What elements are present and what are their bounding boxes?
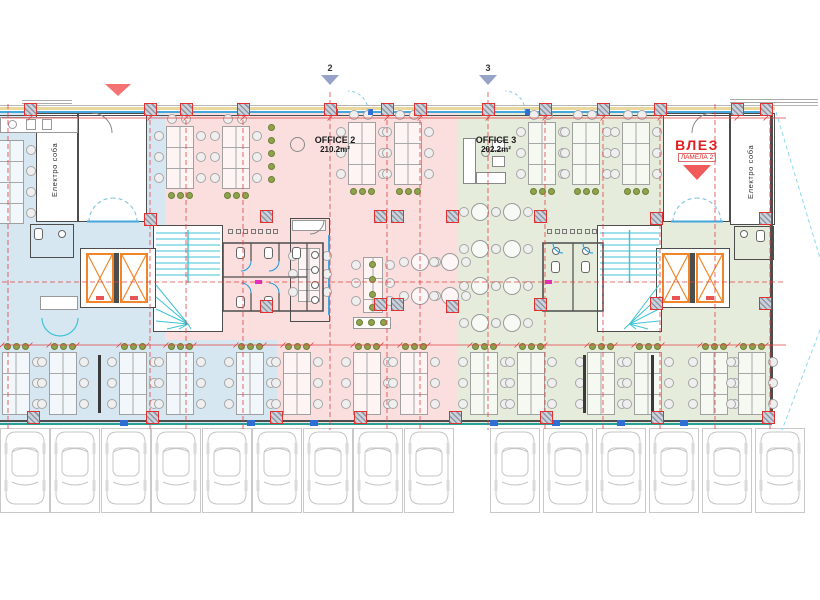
section-2-arrow-icon (321, 75, 339, 85)
electro-room-right-label: Електро соба (746, 128, 755, 216)
office3-area: 202.2m² (470, 145, 522, 154)
office2-label: OFFICE 2 210.2m² (290, 135, 361, 154)
office2-symbol-circle (290, 137, 305, 152)
section-3-arrow-icon (479, 75, 497, 85)
floor-plan-canvas: 2 3 OFFICE 2 210.2m² OFFICE 3 202.2m² ВЛ… (0, 0, 820, 600)
entrance-label: ВЛЕЗ ЛАМЕЛА 2 (660, 138, 734, 180)
office2-area: 210.2m² (309, 145, 361, 154)
section-marker-3: 3 (471, 63, 505, 85)
electro-room-left-label: Електро соба (50, 126, 59, 214)
section-2-number: 2 (327, 63, 332, 73)
entrance-arrow-top-left-icon (105, 84, 131, 96)
labels-layer: 2 3 OFFICE 2 210.2m² OFFICE 3 202.2m² ВЛ… (0, 0, 820, 600)
office3-label: OFFICE 3 202.2m² (470, 135, 522, 154)
entrance-arrow-icon (683, 165, 711, 180)
office2-name: OFFICE 2 (309, 135, 361, 145)
entrance-subtitle: ЛАМЕЛА 2 (678, 153, 716, 162)
section-3-number: 3 (485, 63, 490, 73)
office3-name: OFFICE 3 (470, 135, 522, 145)
section-marker-2: 2 (313, 63, 347, 85)
entrance-title: ВЛЕЗ (675, 138, 719, 152)
